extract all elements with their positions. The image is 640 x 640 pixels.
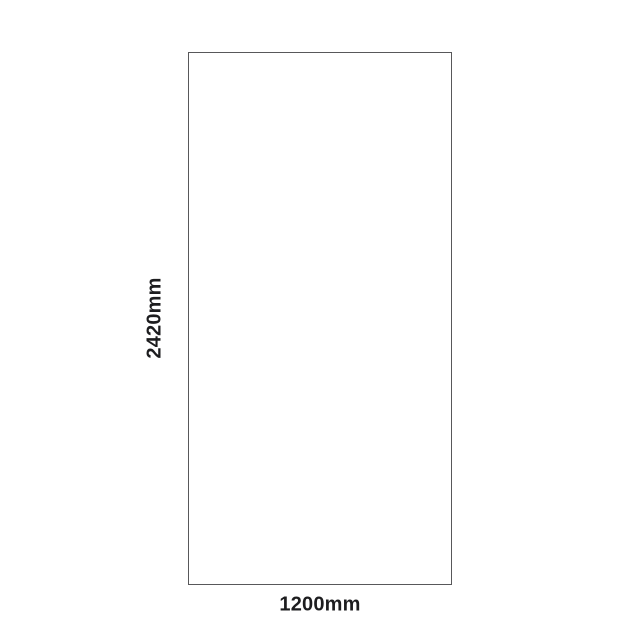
- width-dimension-label: 1200mm: [279, 594, 360, 617]
- dimension-diagram-canvas: 2420mm 1200mm: [0, 0, 640, 640]
- height-dimension-label: 2420mm: [144, 277, 167, 358]
- panel-outline-rectangle: [188, 52, 452, 585]
